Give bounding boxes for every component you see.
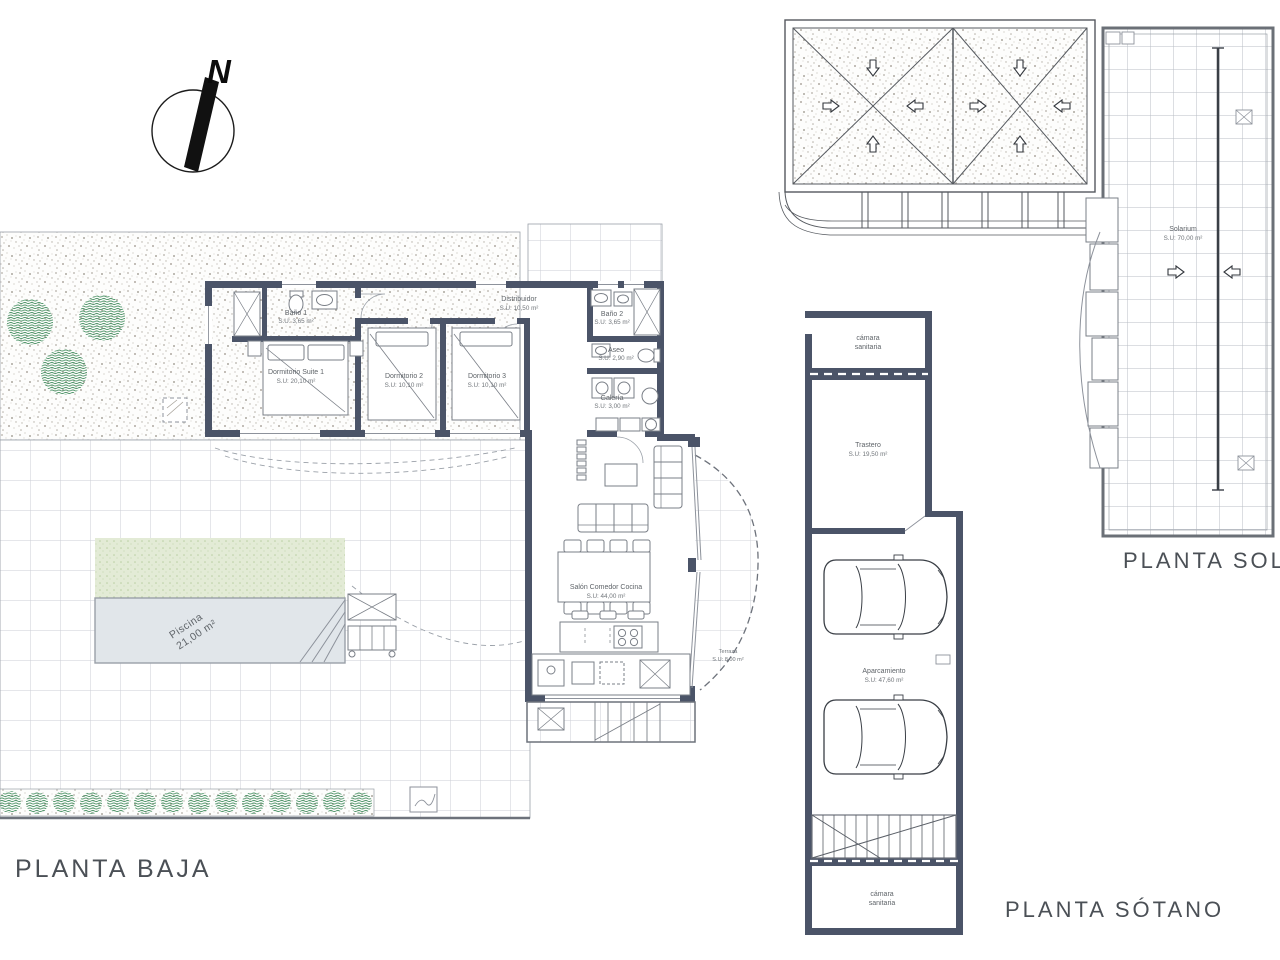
dorm3-area: S.U: 10,10 m² [468, 382, 507, 389]
living-furniture [532, 418, 690, 695]
sofa-icon [654, 446, 682, 508]
toilet-icon [638, 349, 660, 362]
door-leaf [905, 516, 925, 531]
distribuidor-area: S.U: 10,50 m² [500, 305, 539, 312]
salon-label: Salón Comedor Cocina [570, 584, 642, 591]
trastero-area: S.U: 19,50 m² [849, 451, 888, 458]
basement-details [805, 318, 958, 861]
lawn [95, 538, 345, 598]
camara-bottom-label1: cámara [870, 891, 893, 898]
nightstand-icon [350, 341, 363, 356]
dorm2-area: S.U: 10,10 m² [385, 382, 424, 389]
utility-closet-icon [620, 418, 640, 431]
floor-drain [936, 655, 950, 664]
roof-plan [785, 20, 1095, 192]
bush-icon [7, 299, 53, 345]
solarium-label: Solarium [1169, 226, 1197, 233]
deck-edge-steps [1086, 198, 1118, 468]
galeria-area: S.U: 3,00 m² [594, 403, 629, 410]
nightstand-icon [248, 341, 261, 356]
bano2-area: S.U: 3,65 m² [594, 319, 629, 326]
kitchen-sink-icon [547, 666, 555, 674]
title-planta-solarium: PLANTA SOLARIUM [1123, 548, 1280, 573]
car-icon [824, 695, 947, 779]
solarium-deck: Solarium S.U: 70,00 m² [1080, 28, 1273, 536]
water-heater-icon [642, 388, 658, 404]
sofa-icon [578, 504, 648, 532]
compass-icon: N [152, 53, 234, 172]
floor-plan-drawing: N Piscina 21,00 m² [0, 0, 1280, 960]
car-icon [824, 555, 947, 639]
terraza-area-label: S.U: 8,00 m² [712, 657, 744, 663]
title-planta-sotano: PLANTA SÓTANO [1005, 897, 1224, 922]
bano2-label: Baño 2 [601, 311, 623, 318]
walkway-posts [862, 192, 1064, 228]
suite-label: Dormitorio Suite 1 [268, 369, 324, 376]
aseo-label: Aseo [608, 347, 624, 354]
camara-top-label2: sanitaria [855, 344, 882, 351]
dorm2-label: Dormitorio 2 [385, 373, 423, 380]
sink-icon [591, 290, 611, 306]
shelf-icon [577, 440, 586, 480]
sunbeds [348, 594, 396, 657]
bano1-area: S.U: 3,65 m² [278, 318, 313, 325]
trastero-label: Trastero [855, 442, 881, 449]
bush-icon [41, 349, 87, 395]
aparcamiento-area: S.U: 47,60 m² [865, 677, 904, 684]
pool: Piscina 21,00 m² [95, 598, 345, 663]
dining-table-icon [558, 540, 650, 614]
shower-icon [634, 289, 660, 335]
porch [527, 702, 695, 742]
floor-plan-sheet: N Piscina 21,00 m² [0, 0, 1280, 960]
aparcamiento-label: Aparcamiento [862, 668, 905, 675]
stairs-icon [812, 815, 956, 858]
coffee-table-icon [605, 464, 637, 486]
utility-closet-icon [596, 418, 618, 431]
cooktop-icon [614, 626, 642, 648]
kitchen-counter-icon [532, 654, 690, 695]
bush-icon [79, 295, 125, 341]
aseo-area: S.U: 2,90 m² [598, 355, 633, 362]
sink-icon [312, 291, 337, 309]
solarium-area: S.U: 70,00 m² [1164, 235, 1203, 242]
camara-bottom-label2: sanitaria [869, 900, 896, 907]
terraza-label: Terraza [719, 649, 739, 655]
terraza-bay: Terraza S.U: 8,00 m² [695, 455, 758, 690]
hedge-row [0, 789, 374, 816]
title-planta-baja: PLANTA BAJA [15, 855, 212, 883]
sink-icon [614, 292, 632, 306]
distribuidor-label: Distribuidor [501, 296, 537, 303]
suite-area: S.U: 20,10 m² [277, 378, 316, 385]
dorm3-label: Dormitorio 3 [468, 373, 506, 380]
camara-top-label1: cámara [856, 335, 879, 342]
bano1-label: Baño 1 [285, 310, 307, 317]
kitchen-island-icon [560, 611, 658, 652]
walkway [779, 192, 1100, 235]
compass-north-label: N [207, 53, 232, 90]
salon-area: S.U: 44,00 m² [587, 593, 626, 600]
galeria-label: Galería [601, 395, 624, 402]
